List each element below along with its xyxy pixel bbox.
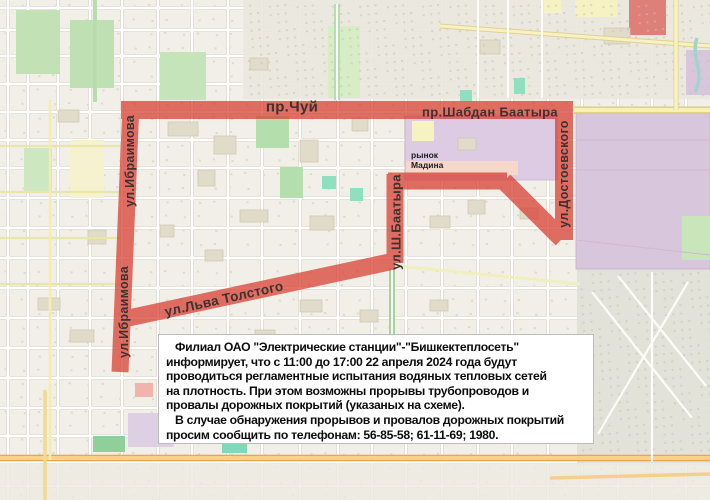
- street-label-shabdan-baatyra: пр.Шабдан Баатыра: [422, 106, 558, 119]
- map-canvas: пр.Чуй пр.Шабдан Баатыра ул.Ибраимова ул…: [0, 0, 710, 500]
- street-label-sh-baatyra: ул.Ш.Баатыра: [390, 174, 403, 270]
- street-label-dostoevsky: ул.Достоевского: [558, 120, 571, 227]
- notice-line: на плотность. При этом возможны прорывы …: [166, 384, 586, 399]
- notice-line: просим сообщить по телефонам: 56-85-58; …: [166, 428, 586, 443]
- notice-line: проводиться регламентные испытания водян…: [166, 369, 586, 384]
- notice-line: В случае обнаружения прорывов и провалов…: [166, 413, 586, 428]
- notice-line: Филиал ОАО "Электрические станции"-"Бишк…: [166, 340, 586, 355]
- notice-box: Филиал ОАО "Электрические станции"-"Бишк…: [158, 334, 594, 444]
- notice-line: информирует, что с 11:00 до 17:00 22 апр…: [166, 355, 586, 370]
- poi-label-madina-market: рынок Мадина: [411, 151, 451, 170]
- street-label-ibraimova-bottom: ул.Ибраимова: [118, 266, 131, 358]
- notice-line: провалы дорожных покрытий (указаных на с…: [166, 398, 586, 413]
- street-label-chuy: пр.Чуй: [266, 100, 318, 115]
- street-label-ibraimova-top: ул.Ибраимова: [124, 115, 137, 207]
